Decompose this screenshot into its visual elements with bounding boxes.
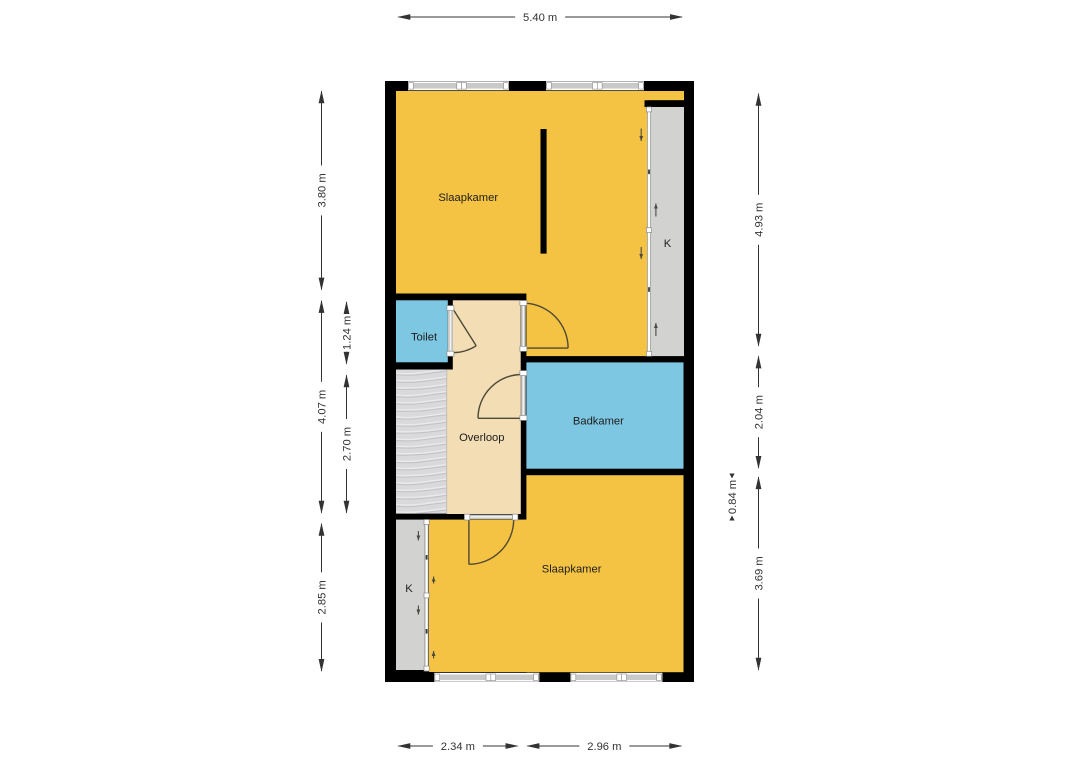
svg-text:Slaapkamer: Slaapkamer (542, 564, 602, 576)
svg-text:2.96 m: 2.96 m (587, 741, 621, 753)
svg-text:3.80 m: 3.80 m (317, 173, 329, 207)
svg-text:K: K (664, 238, 672, 250)
svg-text:Slaapkamer: Slaapkamer (438, 192, 498, 204)
svg-text:Badkamer: Badkamer (573, 416, 624, 428)
svg-text:0.84 m: 0.84 m (727, 480, 739, 514)
svg-text:3.69 m: 3.69 m (754, 556, 766, 590)
svg-text:1.24 m: 1.24 m (342, 316, 354, 350)
svg-text:4.93 m: 4.93 m (754, 203, 766, 237)
svg-text:2.85 m: 2.85 m (317, 580, 329, 614)
svg-text:2.04 m: 2.04 m (754, 395, 766, 429)
svg-text:Toilet: Toilet (411, 332, 438, 344)
svg-text:Overloop: Overloop (459, 432, 504, 444)
svg-text:K: K (405, 583, 413, 595)
svg-text:4.07 m: 4.07 m (317, 390, 329, 424)
svg-text:2.34 m: 2.34 m (441, 741, 475, 753)
svg-text:2.70 m: 2.70 m (342, 427, 354, 461)
svg-text:5.40 m: 5.40 m (523, 12, 557, 24)
